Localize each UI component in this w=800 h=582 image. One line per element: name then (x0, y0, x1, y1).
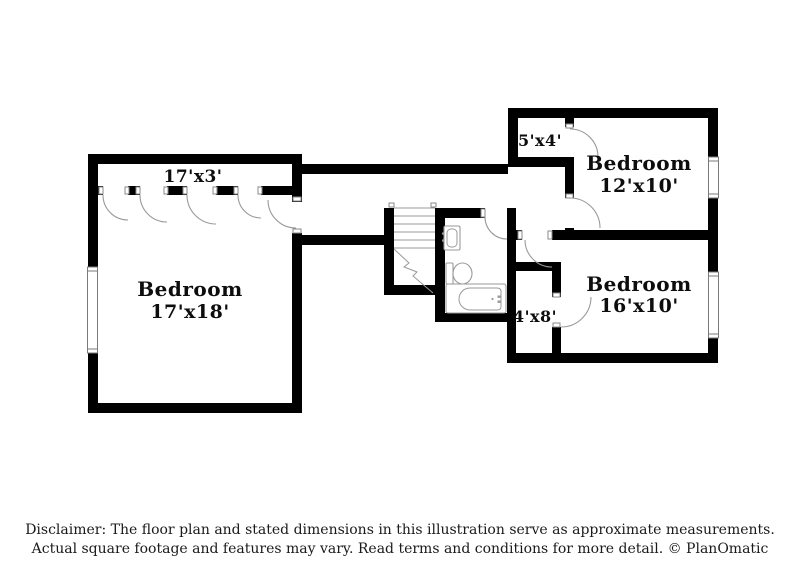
bedroom-left-door-arc (268, 200, 296, 228)
closet-bath-label: 4'x8' (513, 307, 557, 326)
sink-icon (442, 226, 460, 250)
bathtub-icon (446, 284, 506, 313)
wall (552, 230, 710, 240)
wall (552, 327, 561, 353)
floor-plan-page: 17'x3' Bedroom 17'x18' 5'x4' Bedroom 12'… (0, 0, 800, 582)
wall (445, 208, 485, 218)
wall (508, 157, 574, 167)
window (709, 157, 719, 198)
toilet-icon (446, 263, 472, 284)
wall (88, 403, 302, 413)
floor-plan-canvas: 17'x3' Bedroom 17'x18' 5'x4' Bedroom 12'… (0, 0, 800, 582)
wall (292, 233, 302, 413)
wall (435, 208, 445, 322)
wall (302, 164, 508, 174)
bedroom-top-right-name: Bedroom (586, 151, 692, 175)
wall (384, 208, 394, 295)
wall (261, 186, 292, 195)
closet-door-arc (238, 195, 261, 218)
wall (88, 154, 302, 164)
disclaimer-line2: Actual square footage and features may v… (31, 541, 769, 557)
bedroom-bottom-right-name: Bedroom (586, 272, 692, 296)
stairs (394, 208, 435, 293)
disclaimer-line1: Disclaimer: The floor plan and stated di… (25, 522, 775, 538)
bedroom-bottom-right-dims: 16'x10' (599, 295, 678, 317)
bedroom-left-dims: 17'x18' (150, 301, 229, 323)
wall (508, 108, 718, 118)
wall (507, 262, 561, 271)
closet-door-arc (187, 195, 216, 224)
closet-strip-label: 17'x3' (163, 167, 222, 187)
closet-bath-door-arc (561, 297, 591, 327)
closet-small-label: 5'x4' (518, 131, 562, 150)
bedroom-left-name: Bedroom (137, 277, 243, 301)
bathroom-fixtures (442, 226, 506, 313)
disclaimer: Disclaimer: The floor plan and stated di… (25, 522, 775, 557)
window (709, 272, 719, 338)
window (88, 267, 98, 353)
wall (292, 154, 302, 202)
closet-door-arc (140, 195, 167, 222)
wall (435, 313, 516, 322)
closet-door-arc (103, 195, 128, 220)
wall (565, 166, 574, 198)
bedroom-top-right-dims: 12'x10' (599, 175, 678, 197)
wall (508, 353, 718, 363)
wall (508, 108, 518, 157)
bedroom-top-right-door-arc (570, 198, 600, 228)
bathroom-door-arc (485, 217, 507, 239)
wall (302, 235, 393, 245)
